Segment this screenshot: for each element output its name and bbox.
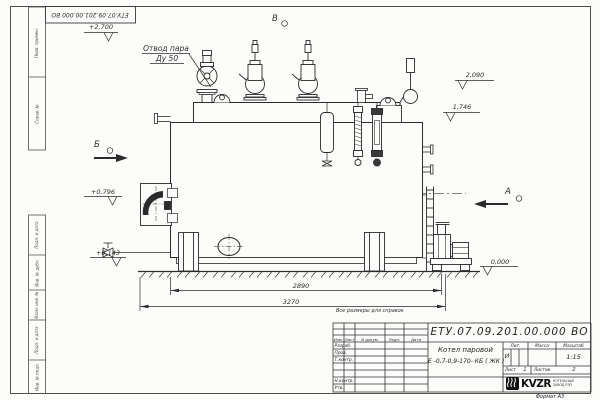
left-wall-stub	[155, 114, 171, 124]
dimension-3270: 3270	[276, 299, 306, 306]
margin-label-perv-primen: Перв. примен.	[29, 8, 45, 78]
dimension-2890: 2890	[286, 283, 316, 290]
reference-note: Все размеры для справок	[336, 309, 404, 315]
lit-value: И	[503, 353, 511, 360]
top-stamp-text: ЕТУ.07.09.201.00.000 ВО	[45, 7, 135, 22]
company-logo: KVZR КОТЕЛЬНЫЙ ЗАВОД РЭП	[506, 377, 590, 391]
feed-pump-unit	[431, 223, 472, 271]
col-header-ndoc: N докум.	[355, 337, 385, 342]
safety-valve-1	[239, 41, 266, 101]
col-header-izm: Изм.	[333, 337, 344, 342]
elevation-0796: +0,796	[84, 189, 122, 196]
col-header-list: Лист	[344, 337, 355, 342]
ground-line	[138, 272, 480, 278]
row-label-nkontr: Н.контр.	[335, 379, 354, 384]
water-gauge-glass	[354, 103, 363, 166]
view-label-top: В	[272, 15, 278, 24]
steam-outlet-dn-label: Ду 50	[150, 55, 184, 63]
sheet-label: Лист	[505, 368, 519, 373]
elevation-2090: 2,090	[456, 72, 494, 79]
sheets-value: 2	[562, 367, 586, 373]
drum-top-fitting	[356, 89, 373, 103]
margin-label-podp-data-2: Подп. и дата	[29, 320, 45, 360]
elevation-1746: 1,746	[444, 104, 480, 111]
col-header-data: Дата	[404, 337, 428, 342]
elevation-0000: 0,000	[482, 259, 518, 266]
margin-label-inv-dubl: Инв. № дубл.	[29, 255, 45, 290]
scale-label: Масштаб	[556, 344, 591, 349]
margin-label-sprav-no: Справ. №	[29, 77, 45, 150]
safety-valve-2	[292, 41, 319, 101]
view-label-left: Б	[94, 141, 100, 150]
sheet-value: 1	[520, 367, 530, 373]
row-label-prov: Пров.	[335, 351, 348, 356]
elevation-0143: +0,143	[90, 250, 126, 257]
product-name-line1: Котел паровой	[428, 346, 503, 354]
burner-assembly	[141, 184, 178, 226]
logo-text: KVZR	[521, 378, 551, 390]
logo-subtext: КОТЕЛЬНЫЙ ЗАВОД РЭП	[553, 380, 574, 388]
margin-label-vzam-inv: Взам. инв. №	[29, 290, 45, 320]
view-label-right: А	[505, 188, 511, 197]
product-name-line2: Е -0,7-0,9-170- КБ ( ЖК )	[428, 358, 503, 365]
margin-label-podp-data-1: Подп. и дата	[29, 215, 45, 255]
col-header-podp: Подп.	[385, 337, 404, 342]
kvzr-logo-icon	[506, 377, 519, 390]
scale-value: 1:15	[556, 353, 591, 361]
drum-lifting-lug	[214, 95, 230, 103]
technical-drawing-svg	[0, 0, 600, 400]
margin-label-inv-podl: Инв. № подл.	[29, 360, 45, 393]
steam-outlet-valve	[197, 51, 217, 103]
mass-label: Масса	[528, 344, 556, 349]
steam-outlet-label: Отвод пара	[142, 45, 190, 53]
right-wall-stubs	[423, 145, 434, 174]
manometer-siphon	[400, 59, 418, 104]
format-note: Формат А3	[520, 394, 580, 400]
row-label-razrab: Разраб.	[335, 344, 352, 349]
sheets-label: Листов	[534, 368, 556, 373]
drawing-sheet: ЕТУ.07.09.201.00.000 ВО Перв. примен. Сп…	[0, 0, 600, 400]
steam-drum	[194, 103, 401, 123]
elevation-2700: +2,700	[84, 24, 118, 31]
lit-label: Лит.	[503, 344, 528, 349]
water-level-column	[372, 103, 383, 167]
row-label-tkontr: Т.контр.	[335, 358, 354, 363]
doc-number: ЕТУ.07.09.201.00.000 ВО	[428, 326, 591, 338]
logo-subtext-line2: ЗАВОД РЭП	[553, 384, 574, 388]
row-label-utv: Утв.	[335, 386, 344, 391]
